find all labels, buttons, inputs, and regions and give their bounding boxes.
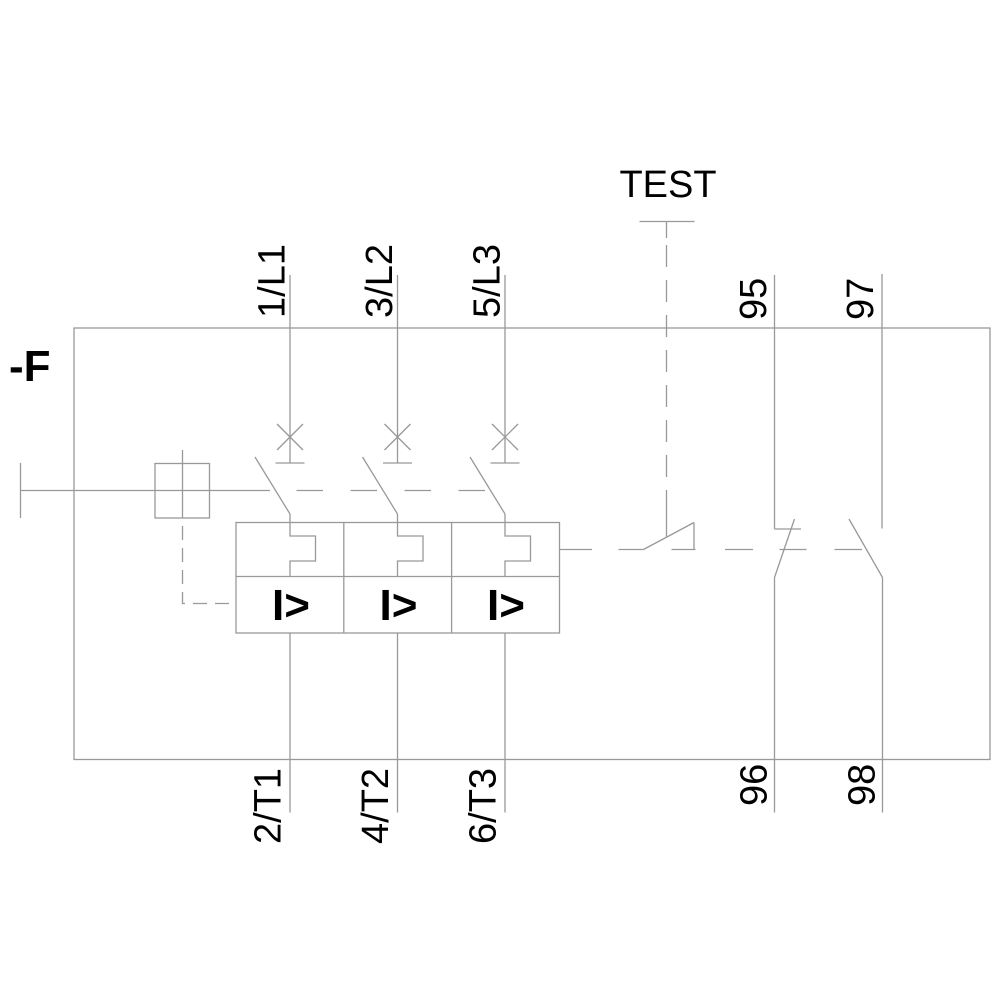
terminal-label-3L2: 3/L2	[359, 244, 401, 318]
pole3-thermal-heater-symbol	[505, 523, 531, 577]
test-actuator-blade	[644, 523, 695, 550]
terminal-label-98: 98	[842, 764, 884, 806]
terminal-label-2T1: 2/T1	[248, 768, 290, 844]
no-contact-blade	[849, 519, 883, 578]
terminal-label-95: 95	[733, 278, 775, 320]
breaker-pole-2	[363, 275, 424, 813]
overcurrent-symbol-2: I>	[380, 581, 418, 630]
device-enclosure-outline	[74, 328, 990, 760]
terminal-labels: 1/L1 3/L2 5/L3 95 97 2/T1 4/T2 6/T3 96 9…	[248, 244, 884, 844]
pole2-thermal-heater-symbol	[398, 523, 424, 577]
terminal-label-6T3: 6/T3	[463, 768, 505, 844]
device-designation-label: -F	[9, 342, 51, 391]
aux-contact-no-97-98	[849, 274, 883, 813]
overcurrent-symbol-3: I>	[487, 581, 525, 630]
test-label: TEST	[619, 164, 716, 206]
terminal-label-1L1: 1/L1	[252, 244, 294, 318]
overload-relay-box: I> I> I>	[236, 523, 560, 634]
pole3-contact-blade	[470, 457, 505, 514]
nc-contact-blade	[775, 519, 795, 578]
motor-starter-protector-schematic: -F	[0, 0, 1000, 1000]
pole2-contact-blade	[363, 457, 398, 514]
aux-contact-nc-95-96	[775, 275, 802, 813]
terminal-label-4T2: 4/T2	[355, 768, 397, 844]
breaker-pole-1	[255, 275, 316, 813]
trip-linkage	[560, 523, 863, 550]
terminal-label-5L3: 5/L3	[467, 244, 509, 318]
terminal-label-96: 96	[734, 764, 776, 806]
pole1-contact-blade	[255, 457, 290, 514]
handle-to-trip-dashed-link	[183, 526, 237, 604]
schematic-page: -F	[0, 0, 1000, 1000]
operating-mechanism	[21, 450, 489, 604]
terminal-label-97: 97	[840, 278, 882, 320]
breaker-pole-3	[470, 275, 531, 813]
test-button: TEST	[619, 164, 716, 537]
pole1-thermal-heater-symbol	[290, 523, 316, 577]
overcurrent-symbol-1: I>	[272, 581, 310, 630]
